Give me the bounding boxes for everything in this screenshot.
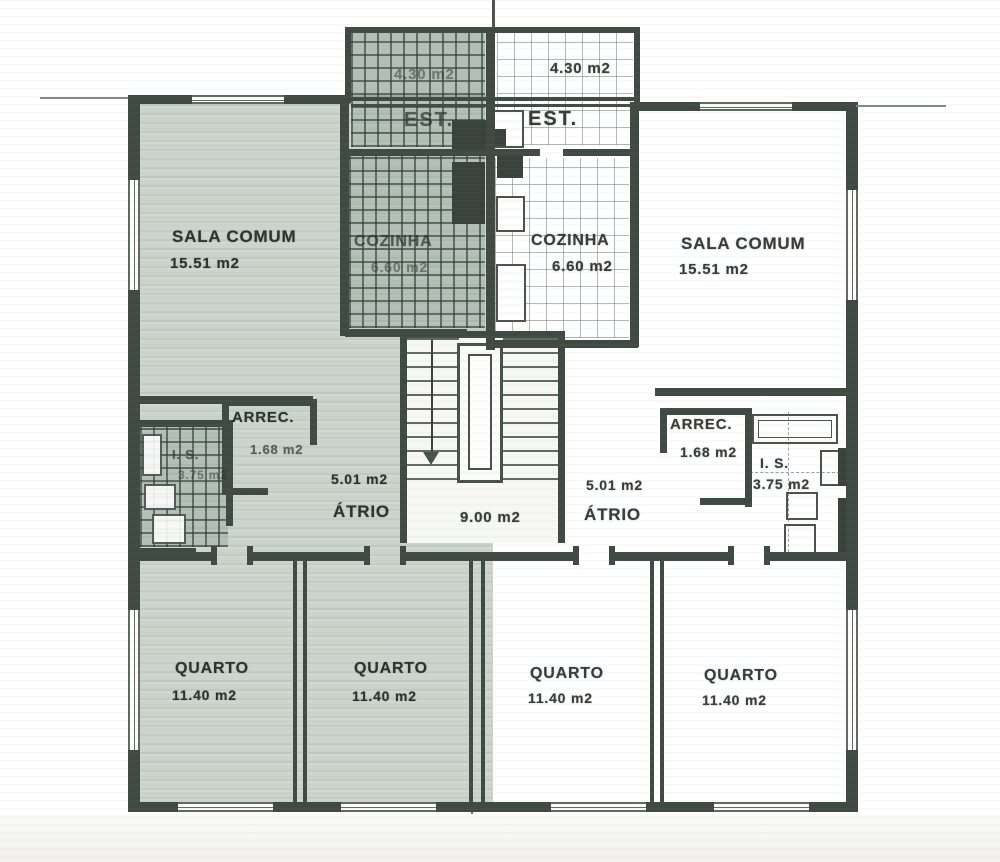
room-label-quarto-1: QUARTO bbox=[175, 660, 249, 678]
wall bbox=[630, 111, 639, 347]
wall bbox=[745, 408, 752, 507]
window bbox=[846, 190, 858, 300]
stair-core-inner bbox=[468, 354, 492, 470]
kitchen-counter-right bbox=[496, 196, 525, 232]
door-jamb bbox=[400, 546, 406, 565]
room-area-quarto-4: 11.40 m2 bbox=[702, 692, 767, 708]
room-area-arrec-right: 1.68 m2 bbox=[680, 444, 737, 460]
window bbox=[128, 610, 140, 750]
room-label-sala-comum-right: SALA COMUM bbox=[681, 234, 805, 254]
reference-line bbox=[856, 105, 946, 107]
room-area-quarto-1: 11.40 m2 bbox=[172, 687, 237, 703]
room-label-cozinha-left: COZINHA bbox=[354, 233, 432, 251]
wall bbox=[345, 27, 351, 103]
door-jamb bbox=[211, 546, 217, 565]
balcony-railing bbox=[495, 97, 634, 101]
wall bbox=[128, 552, 215, 561]
room-area-sala-comum-right: 15.51 m2 bbox=[679, 261, 749, 278]
wall bbox=[400, 331, 407, 543]
room-label-quarto-3: QUARTO bbox=[530, 665, 604, 683]
toilet-right bbox=[786, 492, 818, 520]
kitchen-counter-left bbox=[452, 162, 485, 224]
door-jamb bbox=[764, 546, 770, 565]
room-label-arrec-left: ARREC. bbox=[232, 409, 294, 426]
window bbox=[551, 802, 646, 812]
window bbox=[714, 802, 809, 812]
wall bbox=[660, 556, 664, 804]
duct bbox=[838, 448, 846, 486]
door-jamb bbox=[364, 546, 370, 565]
washbasin-right bbox=[820, 450, 840, 486]
wall bbox=[310, 399, 317, 445]
door-jamb bbox=[247, 546, 253, 565]
wall bbox=[486, 27, 495, 158]
room-area-quarto-3: 11.40 m2 bbox=[528, 690, 593, 706]
center-axis-tick bbox=[492, 0, 495, 28]
bidet-left bbox=[152, 514, 186, 544]
window bbox=[846, 610, 858, 750]
room-area-cozinha-right: 6.60 m2 bbox=[552, 258, 613, 275]
window bbox=[192, 95, 284, 104]
door-jamb bbox=[609, 546, 615, 565]
wall bbox=[400, 331, 565, 338]
room-label-cozinha-right: COZINHA bbox=[531, 232, 609, 250]
toilet-left bbox=[144, 484, 176, 510]
room-area-stairwell: 9.00 m2 bbox=[460, 509, 521, 526]
staircase-flight-right bbox=[503, 338, 558, 484]
wall bbox=[611, 552, 732, 561]
balcony-railing bbox=[351, 104, 486, 107]
window bbox=[700, 102, 792, 111]
wall bbox=[303, 556, 307, 804]
room-area-is-left: 3.75 m2 bbox=[178, 468, 228, 482]
duct bbox=[838, 498, 846, 560]
window bbox=[178, 802, 273, 812]
room-area-atrio-right: 5.01 m2 bbox=[586, 477, 643, 493]
door-jamb bbox=[728, 546, 734, 565]
paper-margin bbox=[0, 814, 1000, 862]
floor-plan-scan: 4.30 m2 EST. 4.30 m2 EST. SALA COMUM 15.… bbox=[0, 0, 1000, 862]
room-area-is-right: 3.75 m2 bbox=[753, 476, 810, 492]
bathtub-inner bbox=[758, 420, 832, 438]
balcony-railing bbox=[351, 97, 486, 101]
wall bbox=[249, 552, 368, 561]
kitchen-fridge-right bbox=[496, 264, 526, 322]
reference-line bbox=[40, 97, 128, 99]
wall bbox=[655, 388, 846, 396]
wall bbox=[134, 420, 232, 427]
room-label-quarto-4: QUARTO bbox=[704, 667, 778, 685]
room-label-atrio-right: ÁTRIO bbox=[584, 505, 641, 525]
room-area-atrio-left: 5.01 m2 bbox=[331, 471, 388, 487]
wall bbox=[402, 552, 577, 561]
wall bbox=[495, 149, 540, 156]
wall bbox=[700, 498, 752, 505]
party-wall bbox=[469, 556, 473, 804]
room-label-sala-comum-left: SALA COMUM bbox=[172, 227, 296, 247]
wall bbox=[660, 408, 667, 453]
room-area-quarto-2: 11.40 m2 bbox=[352, 688, 417, 704]
wall bbox=[495, 340, 638, 348]
window bbox=[128, 180, 140, 290]
room-label-atrio-left: ÁTRIO bbox=[333, 502, 390, 522]
room-area-est-left: 4.30 m2 bbox=[394, 66, 455, 83]
wall bbox=[766, 552, 858, 561]
wall bbox=[563, 149, 638, 156]
wall bbox=[222, 399, 317, 406]
room-label-est-right: EST. bbox=[528, 108, 578, 131]
wall bbox=[650, 556, 654, 804]
door-jamb bbox=[573, 546, 579, 565]
room-label-est-left: EST. bbox=[404, 109, 454, 132]
room-area-cozinha-left: 6.60 m2 bbox=[371, 259, 428, 275]
room-area-est-right: 4.30 m2 bbox=[550, 60, 611, 77]
tile-guide-line bbox=[750, 472, 840, 473]
stair-walk-line bbox=[431, 340, 433, 452]
wall bbox=[558, 331, 565, 543]
window bbox=[341, 802, 436, 812]
stair-direction-arrow bbox=[423, 452, 439, 465]
wall bbox=[660, 408, 752, 415]
balcony-railing bbox=[495, 104, 634, 107]
wall bbox=[634, 27, 640, 108]
room-area-arrec-left: 1.68 m2 bbox=[250, 442, 303, 457]
wall bbox=[345, 149, 495, 156]
room-label-quarto-2: QUARTO bbox=[354, 660, 428, 678]
wall bbox=[293, 556, 297, 804]
wall bbox=[486, 158, 495, 350]
room-label-is-right: I. S. bbox=[760, 455, 789, 471]
room-label-arrec-right: ARREC. bbox=[670, 416, 732, 433]
wall bbox=[340, 104, 349, 336]
room-area-sala-comum-left: 15.51 m2 bbox=[170, 255, 240, 272]
room-label-is-left: I. S. bbox=[172, 447, 199, 462]
washbasin-left bbox=[142, 434, 162, 476]
party-wall bbox=[481, 556, 485, 804]
